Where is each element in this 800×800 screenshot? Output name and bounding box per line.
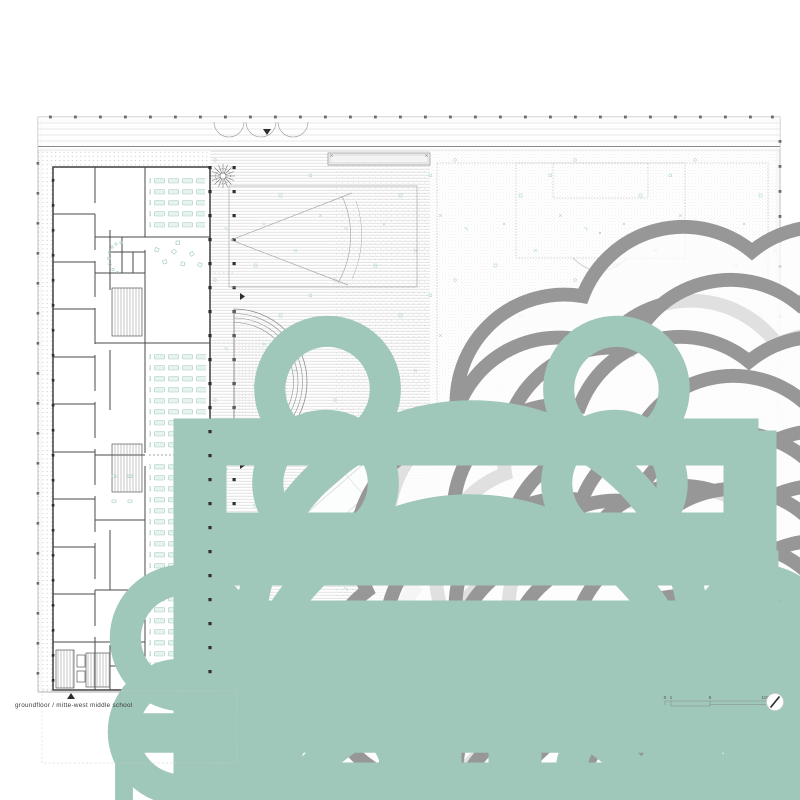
plan-caption: groundfloor / mitte-west middle school — [15, 702, 132, 709]
seminar-room-seats — [149, 174, 205, 231]
scale-label-0: 0 — [664, 695, 667, 701]
palm-tree-icon — [211, 164, 235, 188]
bench-planter — [328, 153, 430, 165]
north-arrow-icon — [767, 694, 784, 711]
entrance-marker-bottom — [67, 693, 75, 699]
floor-plan-canvas: groundfloor / mitte-west middle school 0… — [0, 0, 800, 800]
scale-label-1: 1 — [670, 695, 673, 701]
scale-label-5: 5 — [709, 695, 712, 701]
architectural-plan-page: groundfloor / mitte-west middle school 0… — [0, 0, 800, 800]
entrance-canopy — [38, 117, 780, 150]
